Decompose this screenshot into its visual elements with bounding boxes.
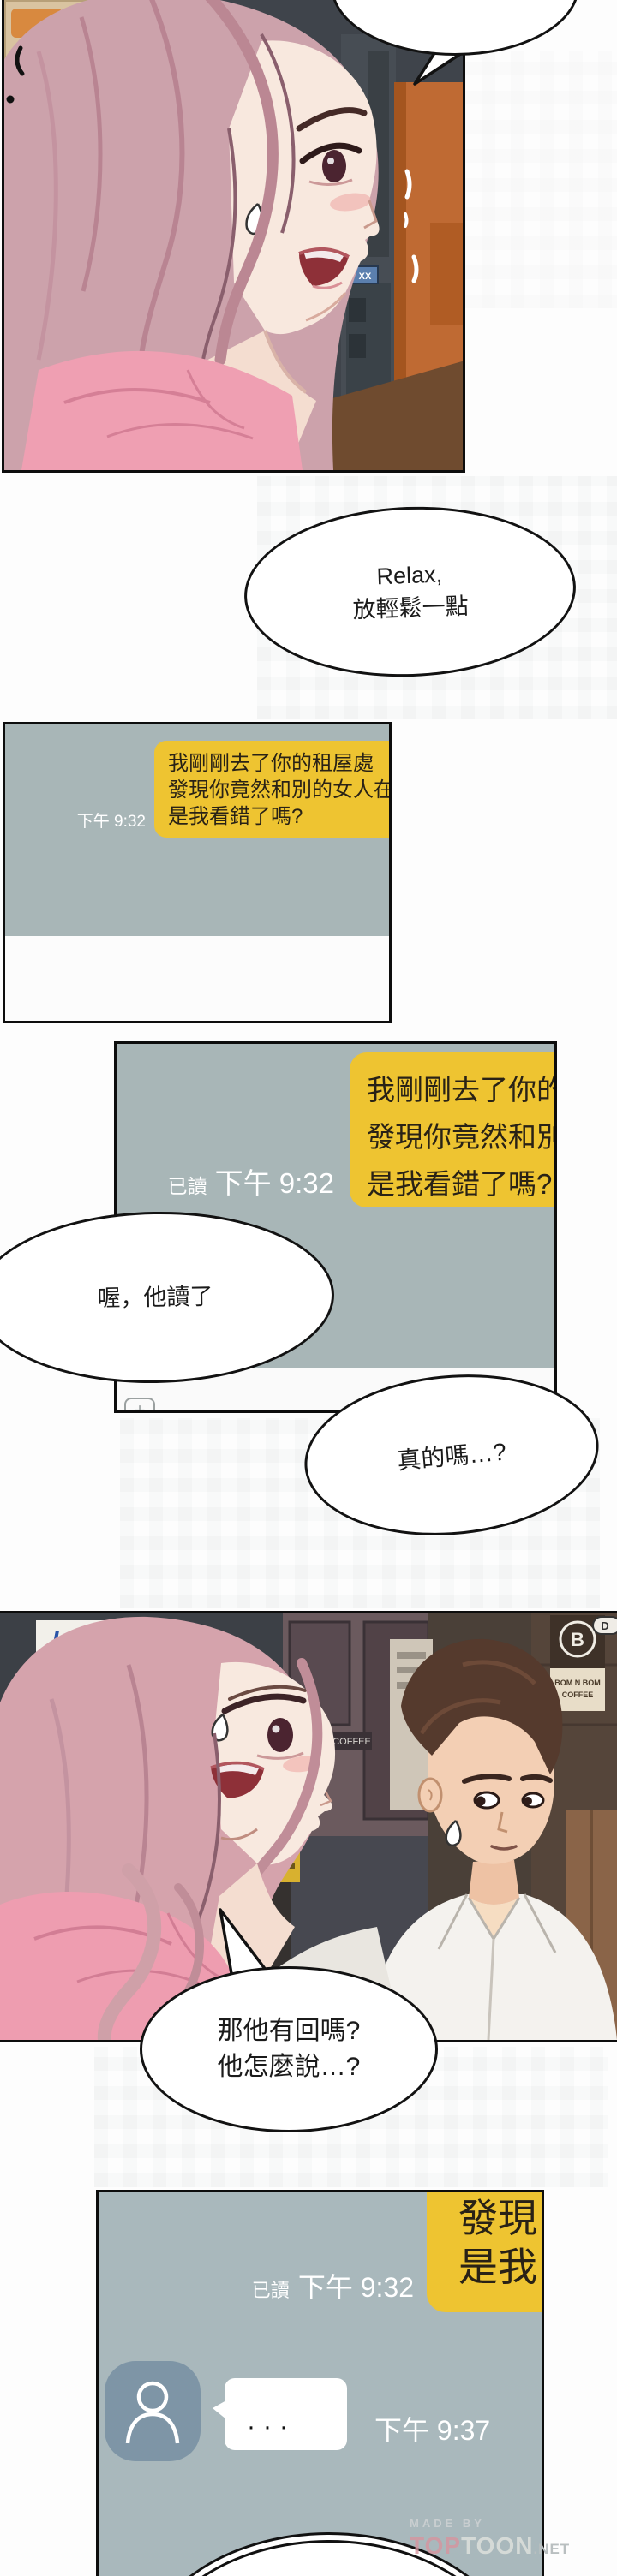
squiggle-marks-icon	[2, 45, 41, 113]
read-label: 已讀	[252, 2275, 290, 2303]
svg-text:XX: XX	[359, 271, 372, 282]
svg-text:COFFEE: COFFEE	[562, 1690, 594, 1699]
message-line: 發現你竟然和別的女人在	[168, 777, 390, 803]
message-line: 我剛剛去了你的	[367, 1066, 555, 1113]
panel-woman-closeup: XX	[2, 0, 465, 473]
message-line: 發現	[458, 2194, 542, 2243]
time-label: 下午 9:32	[298, 2266, 414, 2305]
typing-dots: ···	[247, 2412, 296, 2442]
woman-closeup-art: XX	[4, 0, 465, 470]
message-line: 是我看錯了嗎?	[168, 803, 390, 830]
d-sign: D	[593, 1617, 617, 1634]
relax-line2: 放輕鬆一點	[352, 590, 469, 627]
speech-bubble-relax: Relax, 放輕鬆一點	[242, 501, 579, 682]
relax-line1: Relax,	[376, 558, 443, 593]
incoming-typing-bubble: ···	[225, 2378, 347, 2450]
speech-bubble-did-he-reply: 那他有回嗎? 他怎麼說…?	[140, 1966, 438, 2132]
attach-plus-icon: +	[124, 1398, 155, 1413]
made-by-label: MADE BY	[410, 2518, 570, 2529]
chat-input-bar: +	[5, 936, 389, 1021]
person-icon	[123, 2378, 183, 2445]
typing-timestamp: 下午 9:37	[374, 2409, 490, 2448]
message-line: 發現你竟然和別	[367, 1113, 555, 1160]
read-label: 已讀	[168, 1170, 207, 1199]
message-timestamp: 下午 9:32	[77, 808, 146, 832]
woman-eye	[322, 150, 346, 182]
message-line: 是我	[458, 2243, 542, 2292]
svg-text:B: B	[571, 1629, 584, 1650]
time-label: 下午 9:32	[215, 1160, 334, 1202]
sent-message-bubble: 我剛剛去了你的 發現你竟然和別 是我看錯了嗎?	[350, 1052, 555, 1207]
chat-background: 我剛剛去了你的租屋處 發現你竟然和別的女人在 是我看錯了嗎? 下午 9:32	[5, 724, 389, 936]
sent-message-bubble-zoomed: 發現 是我	[427, 2192, 542, 2312]
read-timestamp: 已讀 下午 9:32	[252, 2266, 414, 2305]
panel-chat-screenshot-1: 我剛剛去了你的租屋處 發現你竟然和別的女人在 是我看錯了嗎? 下午 9:32 +	[3, 722, 392, 1023]
svg-text:BOM N BOM: BOM N BOM	[554, 1679, 601, 1687]
read-timestamp: 已讀 下午 9:32	[168, 1160, 334, 1202]
message-line: 是我看錯了嗎?	[367, 1160, 555, 1207]
message-line: 我剛剛去了你的租屋處	[168, 750, 390, 777]
svg-text:D: D	[601, 1619, 608, 1632]
webtoon-page: XX	[0, 0, 617, 2576]
toptoon-logo: TOPTOON.NET	[410, 2534, 570, 2558]
avatar	[105, 2361, 201, 2461]
site-watermark: MADE BY TOPTOON.NET	[410, 2518, 570, 2558]
sent-message-bubble: 我剛剛去了你的租屋處 發現你竟然和別的女人在 是我看錯了嗎?	[154, 741, 390, 838]
typing-bubble-tail	[213, 2400, 226, 2419]
